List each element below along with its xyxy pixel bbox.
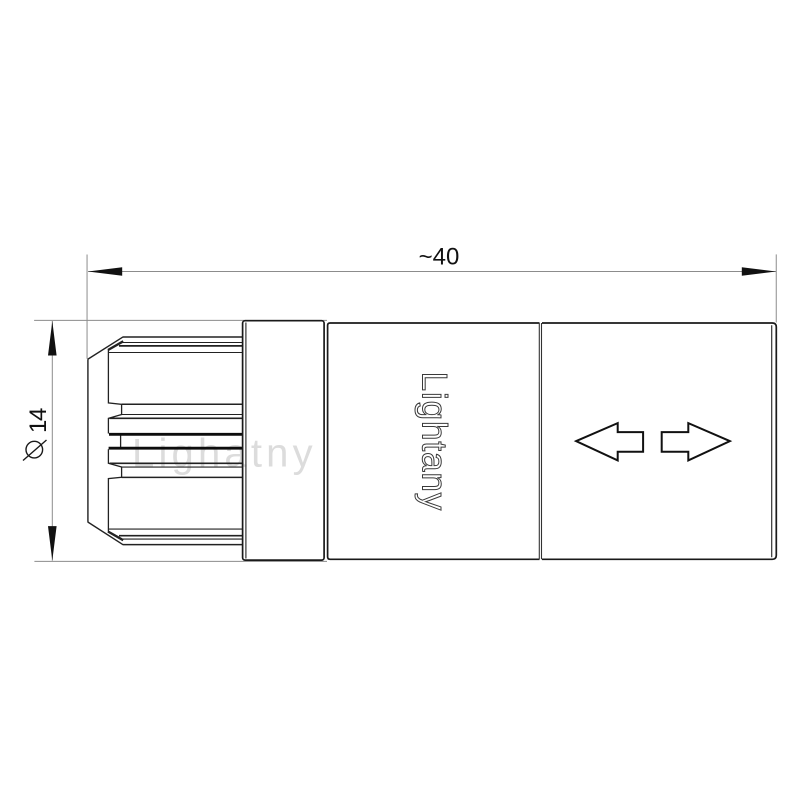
svg-text:14: 14 (25, 408, 52, 433)
svg-text:Lighatny: Lighatny (132, 432, 317, 476)
svg-text:~40: ~40 (419, 244, 460, 271)
svg-text:Lightany: Lightany (414, 372, 453, 512)
